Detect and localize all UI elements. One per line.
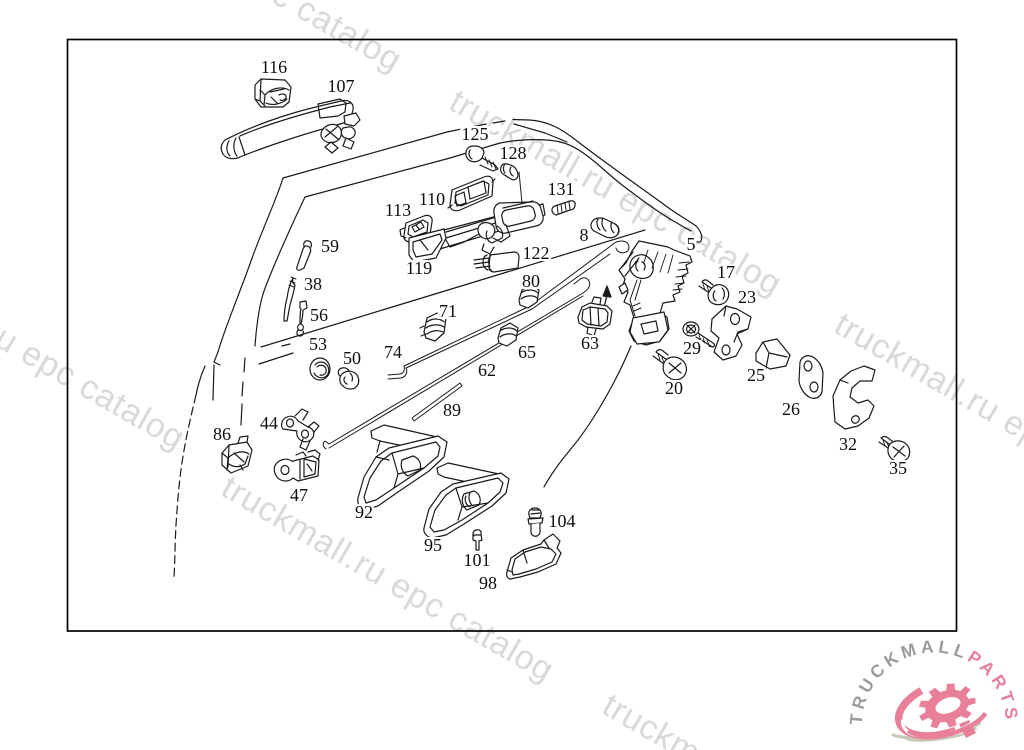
svg-text:92: 92 [355,502,373,522]
svg-text:20: 20 [665,378,683,398]
svg-text:119: 119 [406,258,432,278]
svg-text:25: 25 [747,365,765,385]
svg-text:5: 5 [687,234,696,254]
svg-text:128: 128 [500,143,527,163]
svg-text:101: 101 [464,550,491,570]
svg-text:29: 29 [683,338,701,358]
svg-text:104: 104 [549,511,576,531]
svg-text:26: 26 [782,399,800,419]
svg-text:59: 59 [321,236,339,256]
svg-text:131: 131 [548,179,575,199]
svg-text:53: 53 [309,334,327,354]
svg-text:17: 17 [717,262,735,282]
svg-text:62: 62 [478,360,496,380]
svg-text:125: 125 [462,124,489,144]
svg-text:71: 71 [439,301,457,321]
svg-text:47: 47 [290,485,308,505]
svg-text:98: 98 [479,573,497,593]
svg-text:74: 74 [384,342,402,362]
svg-text:116: 116 [261,57,287,77]
svg-text:50: 50 [343,348,361,368]
svg-text:23: 23 [738,287,756,307]
svg-text:32: 32 [839,434,857,454]
svg-text:8: 8 [580,225,589,245]
svg-text:113: 113 [385,200,411,220]
svg-text:56: 56 [310,305,328,325]
svg-text:95: 95 [424,535,442,555]
svg-text:80: 80 [522,271,540,291]
svg-text:89: 89 [443,400,461,420]
svg-text:86: 86 [213,424,231,444]
svg-text:63: 63 [581,333,599,353]
svg-text:110: 110 [419,189,445,209]
svg-text:122: 122 [523,243,550,263]
svg-text:44: 44 [260,413,278,433]
svg-text:38: 38 [304,274,322,294]
svg-text:35: 35 [889,458,907,478]
svg-text:65: 65 [518,342,536,362]
svg-text:107: 107 [328,76,355,96]
